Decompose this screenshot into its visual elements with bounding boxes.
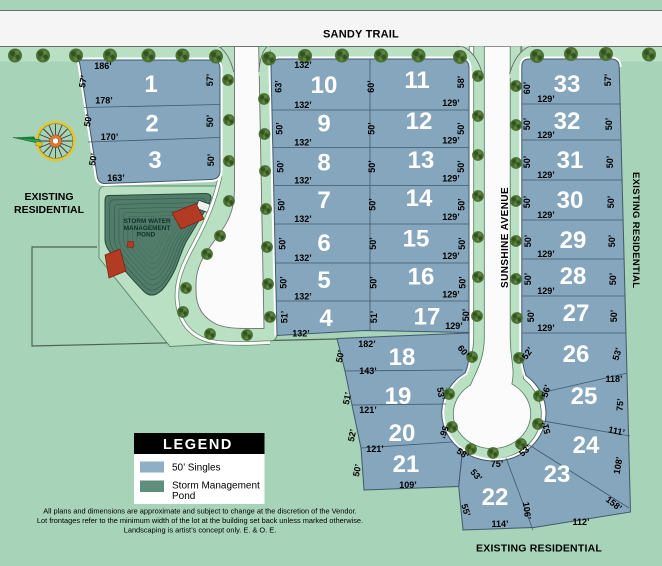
svg-text:3: 3 [148, 147, 161, 174]
svg-text:112’: 112’ [572, 517, 589, 527]
svg-text:16: 16 [408, 264, 435, 291]
svg-text:129’: 129’ [445, 321, 463, 331]
svg-text:50’: 50’ [368, 237, 378, 250]
svg-text:50’: 50’ [206, 154, 216, 167]
svg-text:106’: 106’ [521, 501, 533, 520]
svg-text:121’: 121’ [366, 444, 384, 454]
svg-text:POND: POND [137, 231, 156, 238]
svg-text:2: 2 [145, 111, 158, 138]
svg-text:50’: 50’ [275, 122, 285, 135]
svg-text:All plans and dimensions are a: All plans and dimensions are approximate… [43, 507, 356, 516]
svg-text:50’: 50’ [205, 115, 215, 128]
svg-text:50’: 50’ [276, 160, 286, 173]
svg-text:57’: 57’ [77, 74, 89, 88]
svg-text:20: 20 [389, 420, 416, 447]
svg-text:129’: 129’ [537, 210, 555, 220]
svg-text:8: 8 [317, 150, 330, 177]
svg-text:57’: 57’ [205, 74, 215, 87]
svg-text:132’: 132’ [294, 292, 312, 302]
svg-text:25: 25 [571, 383, 598, 410]
svg-text:51’: 51’ [369, 311, 379, 324]
svg-text:132’: 132’ [294, 214, 312, 224]
svg-text:60’: 60’ [366, 80, 376, 93]
svg-text:132’: 132’ [294, 176, 312, 186]
svg-text:50’: 50’ [368, 198, 378, 211]
svg-text:129’: 129’ [442, 251, 460, 261]
svg-text:50’ Singles: 50’ Singles [172, 463, 221, 474]
svg-text:53’: 53’ [435, 386, 447, 400]
svg-text:22: 22 [482, 484, 509, 511]
svg-text:23: 23 [544, 461, 571, 488]
svg-text:17: 17 [414, 304, 441, 331]
svg-text:32: 32 [554, 108, 581, 135]
svg-text:118’: 118’ [605, 374, 622, 384]
svg-text:50’: 50’ [458, 276, 468, 289]
svg-text:129’: 129’ [442, 212, 460, 222]
svg-text:143’: 143’ [359, 366, 377, 376]
svg-text:Lot frontages refer to the min: Lot frontages refer to the minimum width… [37, 516, 363, 525]
svg-text:28: 28 [560, 263, 587, 290]
svg-text:57’: 57’ [603, 74, 613, 87]
svg-text:50’: 50’ [456, 160, 466, 173]
svg-text:50’: 50’ [279, 276, 289, 289]
svg-text:12: 12 [406, 108, 433, 135]
svg-text:Pond: Pond [172, 491, 195, 502]
svg-text:10: 10 [311, 72, 338, 99]
svg-text:50’: 50’ [607, 235, 617, 248]
svg-text:132’: 132’ [292, 329, 310, 339]
svg-text:51’: 51’ [280, 311, 290, 324]
svg-text:50’: 50’ [522, 196, 532, 209]
svg-text:13: 13 [408, 147, 435, 174]
svg-text:132’: 132’ [294, 138, 312, 148]
svg-text:50’: 50’ [457, 237, 467, 250]
svg-text:11: 11 [404, 67, 429, 94]
svg-text:EXISTING: EXISTING [24, 191, 73, 203]
svg-text:9: 9 [317, 111, 330, 138]
svg-text:178’: 178’ [95, 96, 113, 106]
svg-text:50’: 50’ [523, 235, 533, 248]
svg-text:129’: 129’ [537, 130, 555, 140]
svg-text:50’: 50’ [369, 276, 379, 289]
svg-text:19: 19 [385, 383, 412, 410]
svg-text:75’: 75’ [614, 398, 625, 411]
svg-text:50’: 50’ [605, 156, 615, 169]
svg-text:186’: 186’ [94, 61, 112, 71]
svg-text:26: 26 [563, 341, 590, 368]
svg-text:50’: 50’ [87, 152, 99, 166]
svg-text:132’: 132’ [294, 100, 312, 110]
svg-text:50’: 50’ [604, 118, 614, 131]
svg-text:21: 21 [393, 451, 420, 478]
svg-text:33: 33 [554, 71, 581, 98]
svg-text:50’: 50’ [608, 273, 618, 286]
svg-text:4: 4 [319, 305, 333, 332]
svg-text:63’: 63’ [274, 80, 284, 93]
svg-text:24: 24 [573, 432, 600, 459]
svg-text:LEGEND: LEGEND [163, 437, 233, 453]
svg-text:15: 15 [403, 226, 430, 253]
svg-text:50’: 50’ [367, 160, 377, 173]
svg-text:14: 14 [406, 185, 433, 212]
svg-text:129’: 129’ [537, 323, 555, 333]
svg-text:170’: 170’ [101, 132, 119, 142]
svg-text:50’: 50’ [609, 310, 619, 323]
svg-text:50’: 50’ [82, 113, 94, 127]
svg-text:18: 18 [389, 344, 416, 371]
svg-text:5: 5 [317, 267, 330, 294]
svg-text:1: 1 [144, 71, 157, 98]
svg-text:6: 6 [317, 230, 330, 257]
svg-text:58’: 58’ [456, 76, 466, 89]
svg-text:121’: 121’ [359, 405, 377, 415]
svg-text:50’: 50’ [526, 310, 536, 323]
svg-text:50’: 50’ [456, 122, 466, 135]
svg-text:163’: 163’ [107, 173, 125, 183]
svg-text:SANDY TRAIL: SANDY TRAIL [323, 29, 399, 41]
svg-text:129’: 129’ [537, 249, 555, 259]
svg-text:129’: 129’ [442, 290, 460, 300]
svg-text:129’: 129’ [537, 94, 555, 104]
svg-text:7: 7 [317, 187, 330, 214]
svg-text:75’: 75’ [491, 459, 504, 469]
svg-text:132’: 132’ [294, 253, 312, 263]
svg-text:50’: 50’ [457, 198, 467, 211]
svg-text:129’: 129’ [442, 98, 460, 108]
svg-text:50’: 50’ [367, 122, 377, 135]
svg-text:SUNSHINE AVENUE: SUNSHINE AVENUE [500, 187, 511, 288]
svg-text:29: 29 [560, 227, 587, 254]
svg-text:Storm Management: Storm Management [172, 481, 260, 492]
svg-text:129’: 129’ [442, 136, 460, 146]
svg-text:Landscaping is artist’s concep: Landscaping is artist’s concept only. E.… [124, 526, 277, 535]
svg-text:132’: 132’ [294, 60, 312, 70]
svg-text:129’: 129’ [537, 170, 555, 180]
svg-text:50’: 50’ [278, 237, 288, 250]
svg-text:RESIDENTIAL: RESIDENTIAL [14, 204, 85, 216]
svg-text:50’: 50’ [523, 273, 533, 286]
svg-text:129’: 129’ [442, 174, 460, 184]
svg-text:EXISTING RESIDENTIAL: EXISTING RESIDENTIAL [630, 172, 641, 288]
svg-text:EXISTING RESIDENTIAL: EXISTING RESIDENTIAL [476, 543, 602, 555]
svg-text:30: 30 [557, 187, 584, 214]
svg-text:50’: 50’ [522, 118, 532, 131]
svg-text:27: 27 [563, 300, 590, 327]
svg-text:31: 31 [557, 147, 584, 174]
svg-text:50’: 50’ [522, 156, 532, 169]
svg-text:50’: 50’ [277, 198, 287, 211]
svg-text:114’: 114’ [491, 519, 508, 529]
svg-text:50’: 50’ [606, 196, 616, 209]
svg-text:129’: 129’ [537, 286, 555, 296]
svg-text:109’: 109’ [399, 480, 417, 490]
svg-text:60’: 60’ [522, 82, 532, 95]
svg-text:182’: 182’ [358, 339, 376, 349]
svg-text:50’: 50’ [461, 309, 471, 322]
